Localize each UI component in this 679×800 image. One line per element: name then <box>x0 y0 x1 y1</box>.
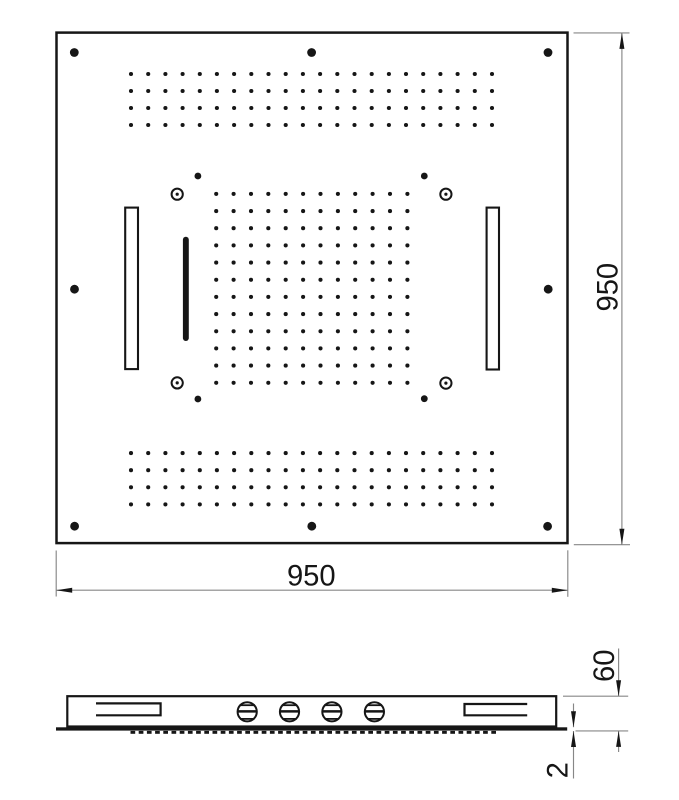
svg-text:950: 950 <box>287 560 336 592</box>
svg-text:60: 60 <box>589 650 621 682</box>
svg-text:2: 2 <box>543 762 575 778</box>
svg-text:950: 950 <box>592 263 624 312</box>
